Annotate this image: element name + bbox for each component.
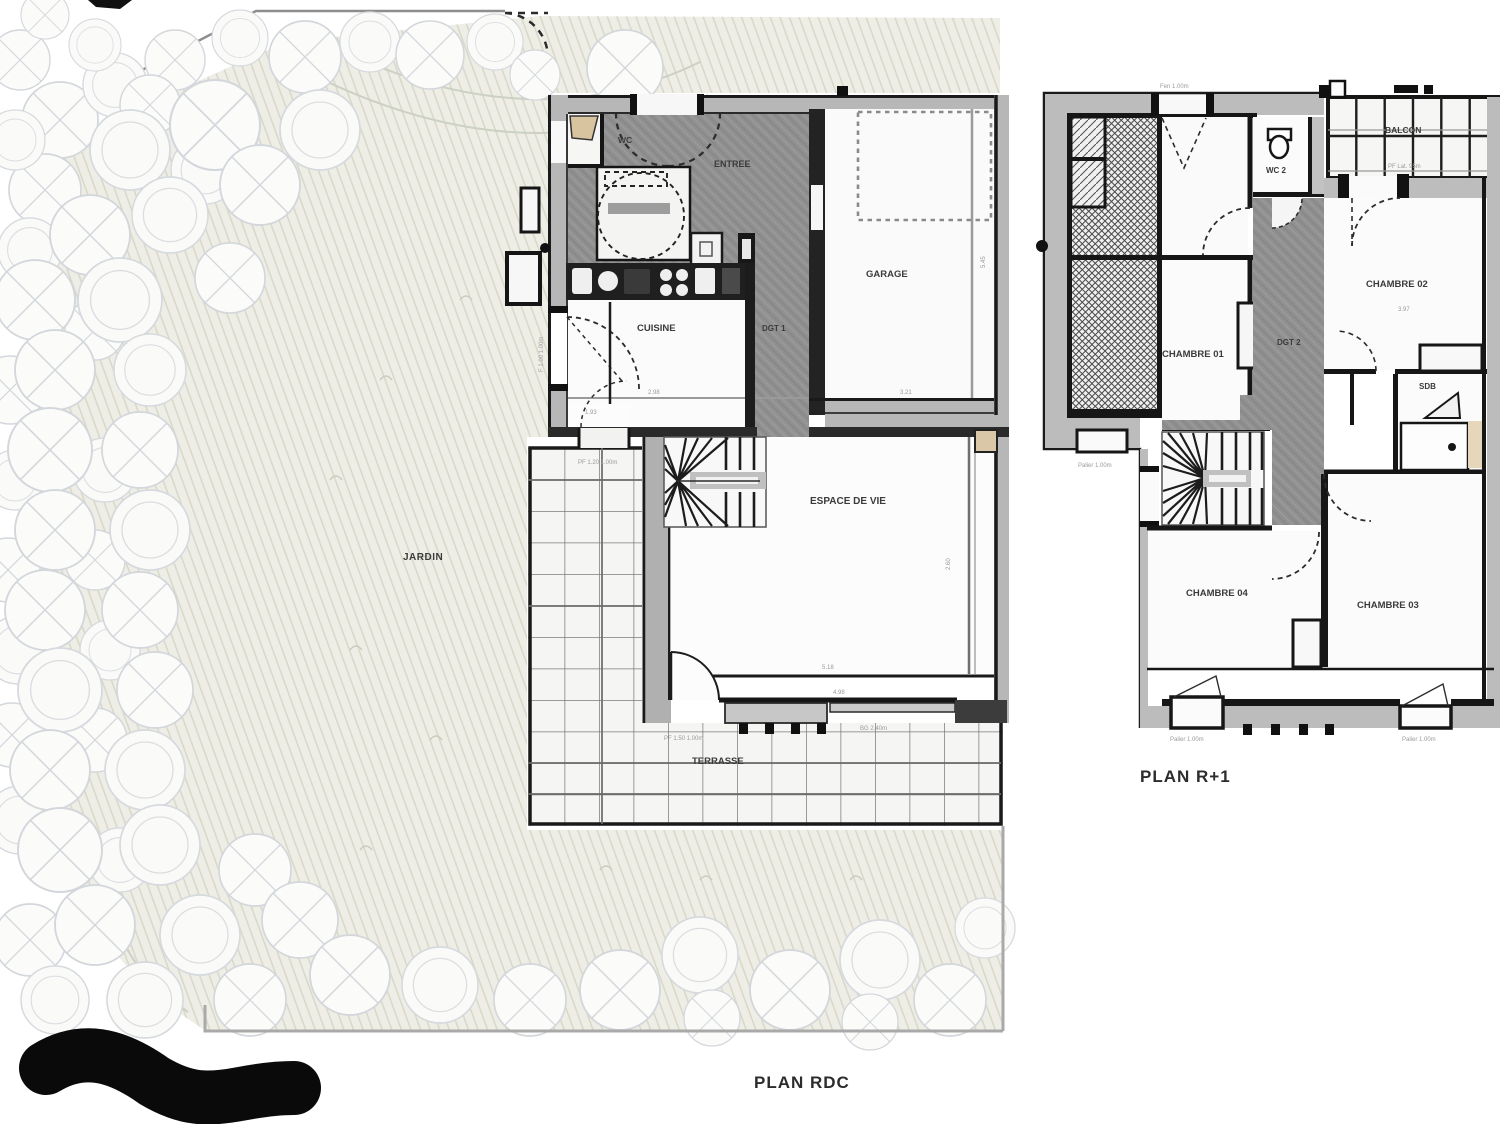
svg-text:5.18: 5.18 xyxy=(822,665,834,671)
svg-text:Palier 1.00m: Palier 1.00m xyxy=(1078,463,1112,469)
svg-text:CHAMBRE 04: CHAMBRE 04 xyxy=(1186,588,1248,599)
svg-text:DGT 1: DGT 1 xyxy=(762,324,786,333)
svg-text:CHAMBRE 03: CHAMBRE 03 xyxy=(1357,600,1419,611)
svg-text:PF 1.50 1.00m: PF 1.50 1.00m xyxy=(664,736,703,742)
svg-text:PLAN RDC: PLAN RDC xyxy=(754,1073,850,1092)
svg-text:SDB: SDB xyxy=(1419,382,1436,391)
svg-text:2.98: 2.98 xyxy=(648,390,660,396)
svg-text:CUISINE: CUISINE xyxy=(637,323,676,334)
svg-text:WC: WC xyxy=(618,135,632,145)
svg-text:Palier 1.00m: Palier 1.00m xyxy=(1402,737,1436,743)
svg-text:PF 1.20 1.00m: PF 1.20 1.00m xyxy=(578,460,617,466)
svg-text:BG 2.40m: BG 2.40m xyxy=(860,726,887,732)
svg-text:2.60: 2.60 xyxy=(946,558,952,570)
svg-text:3.21: 3.21 xyxy=(900,390,912,396)
svg-text:GARAGE: GARAGE xyxy=(866,269,908,280)
svg-text:Palier 1.00m: Palier 1.00m xyxy=(1170,737,1204,743)
svg-text:TERRASSE: TERRASSE xyxy=(692,756,744,767)
svg-text:3.97: 3.97 xyxy=(1398,307,1410,313)
svg-text:Fen 1.00m: Fen 1.00m xyxy=(1160,84,1189,90)
svg-text:5.45: 5.45 xyxy=(981,256,987,268)
svg-text:DGT 2: DGT 2 xyxy=(1277,338,1301,347)
svg-text:WC 2: WC 2 xyxy=(1266,166,1287,175)
svg-text:CHAMBRE 02: CHAMBRE 02 xyxy=(1366,279,1428,290)
svg-text:1.93: 1.93 xyxy=(585,410,597,416)
svg-text:ENTREE: ENTREE xyxy=(714,159,751,169)
svg-text:ESPACE DE VIE: ESPACE DE VIE xyxy=(810,496,886,507)
svg-text:F 1.00 1.00m: F 1.00 1.00m xyxy=(539,337,545,372)
svg-text:CHAMBRE 01: CHAMBRE 01 xyxy=(1162,349,1224,360)
svg-text:PF Lat. 95m: PF Lat. 95m xyxy=(1388,164,1421,170)
svg-text:BALCON: BALCON xyxy=(1385,125,1421,135)
svg-text:JARDIN: JARDIN xyxy=(403,552,443,563)
svg-text:4.98: 4.98 xyxy=(833,690,845,696)
svg-text:PLAN R+1: PLAN R+1 xyxy=(1140,767,1231,786)
